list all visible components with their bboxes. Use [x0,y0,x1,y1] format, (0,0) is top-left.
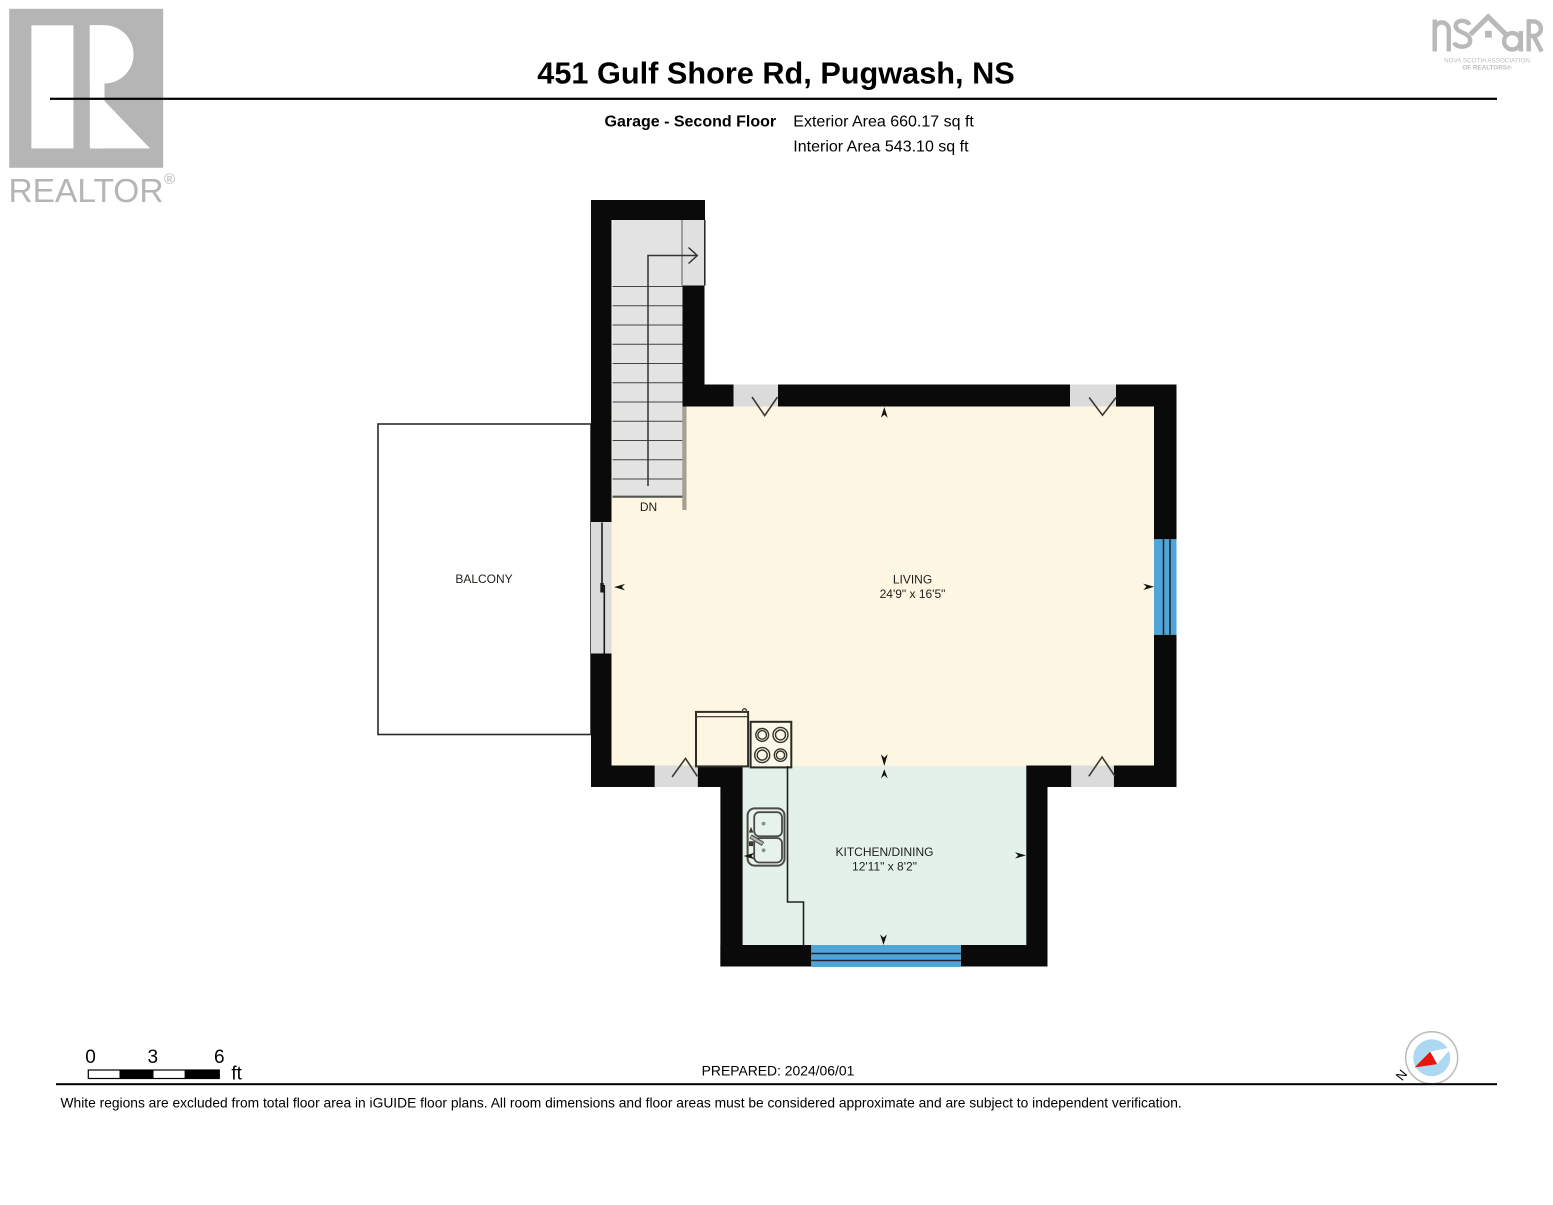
svg-text:PREPARED: 2024/06/01: PREPARED: 2024/06/01 [702,1063,855,1079]
svg-text:BALCONY: BALCONY [455,572,512,586]
svg-text:12'11" x 8'2": 12'11" x 8'2" [852,860,917,874]
svg-text:REALTOR: REALTOR [9,172,164,209]
svg-text:ft: ft [231,1064,242,1085]
svg-text:OF REALTORS®: OF REALTORS® [1462,63,1512,71]
svg-text:White regions are excluded fro: White regions are excluded from total fl… [61,1096,1182,1111]
svg-text:Garage - Second Floor: Garage - Second Floor [605,113,777,130]
svg-text:3: 3 [148,1047,159,1068]
svg-text:LIVING: LIVING [893,573,932,587]
svg-text:Interior Area 543.10 sq ft: Interior Area 543.10 sq ft [793,138,969,155]
svg-text:451 Gulf Shore Rd, Pugwash, NS: 451 Gulf Shore Rd, Pugwash, NS [537,56,1014,91]
svg-text:0: 0 [85,1047,96,1068]
svg-text:DN: DN [640,500,657,514]
svg-text:KITCHEN/DINING: KITCHEN/DINING [835,845,933,859]
svg-text:®: ® [164,171,175,188]
svg-text:24'9" x 16'5": 24'9" x 16'5" [880,587,946,601]
svg-text:6: 6 [214,1047,225,1068]
svg-text:Exterior Area 660.17 sq ft: Exterior Area 660.17 sq ft [793,113,974,130]
